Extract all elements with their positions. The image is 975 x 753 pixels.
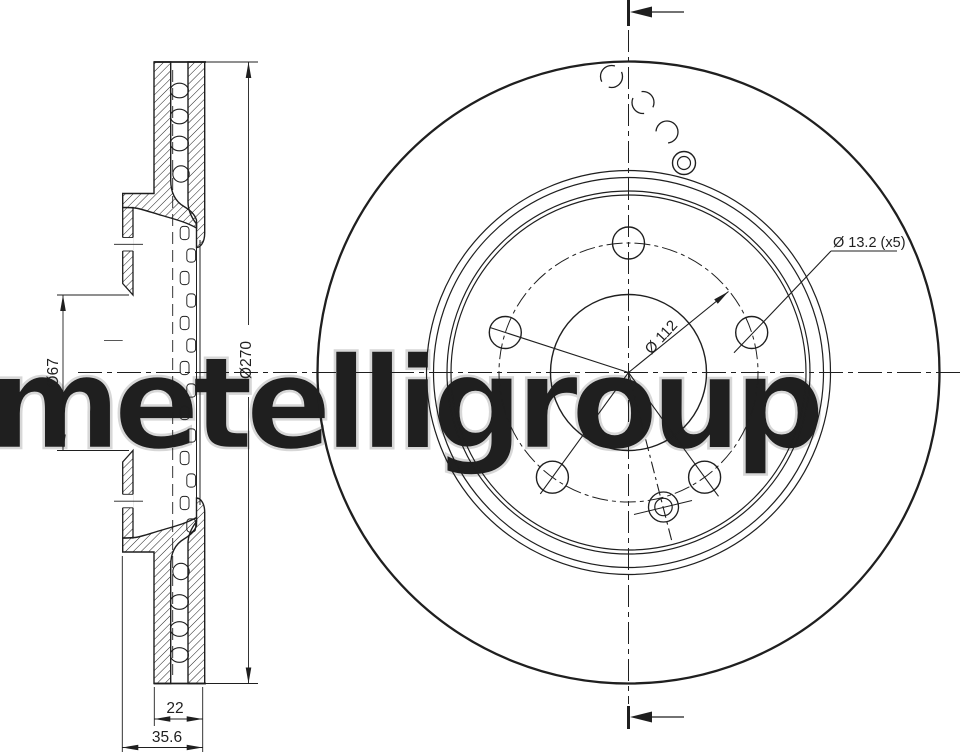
vent-holes-front xyxy=(601,66,696,175)
datum-mark-bottom xyxy=(629,706,685,729)
dim-thickness-label: 22 xyxy=(166,700,183,717)
section-outboard-plate-bottom xyxy=(123,518,197,684)
section-outboard-plate-top xyxy=(123,62,197,228)
watermark-text: metelligroup xyxy=(0,330,820,479)
section-bolt-hole-top xyxy=(114,238,143,252)
brake-disc-drawing: metelligroup xyxy=(0,0,975,753)
technical-drawing-canvas: metelligroup xyxy=(0,0,975,753)
datum-mark-top xyxy=(629,0,685,26)
dim-bolt-holes-label: Ø 13.2 (x5) xyxy=(833,235,906,251)
dim-height-label: 35.6 xyxy=(152,729,182,746)
arrowhead xyxy=(714,292,728,304)
section-bolt-hole-bottom xyxy=(114,494,143,508)
dim-outer-diameter-label: Ø270 xyxy=(238,341,255,379)
dim-bore-label: Ø67 xyxy=(45,358,62,387)
